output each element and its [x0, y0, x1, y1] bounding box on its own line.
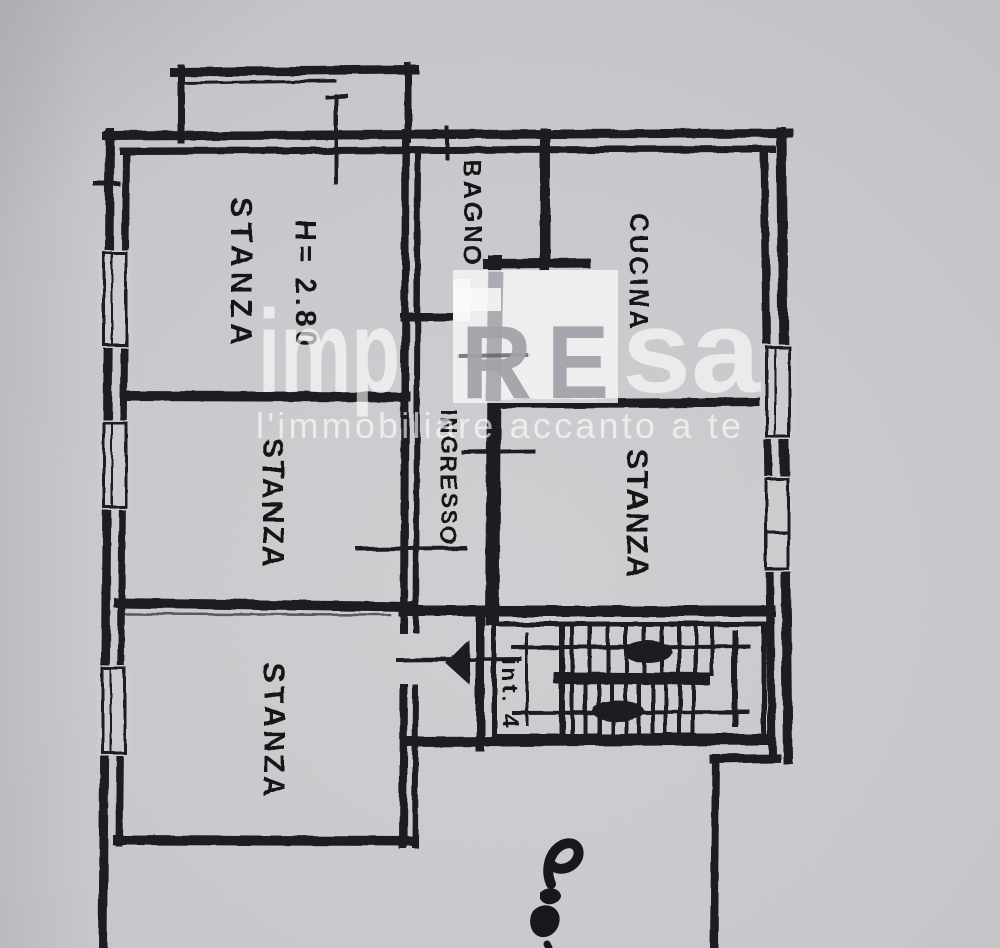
- svg-text:sa: sa: [622, 286, 761, 418]
- svg-text:imp: imp: [258, 286, 400, 418]
- svg-text:R: R: [461, 305, 532, 421]
- svg-text:E: E: [547, 305, 609, 421]
- svg-text:int. 4: int. 4: [497, 658, 523, 730]
- svg-text:STANZA: STANZA: [257, 663, 290, 800]
- svg-text:STANZA: STANZA: [256, 438, 289, 569]
- svg-text:BAGNO: BAGNO: [458, 160, 486, 268]
- svg-text:STANZA: STANZA: [224, 197, 259, 350]
- svg-text:STANZA: STANZA: [620, 449, 655, 578]
